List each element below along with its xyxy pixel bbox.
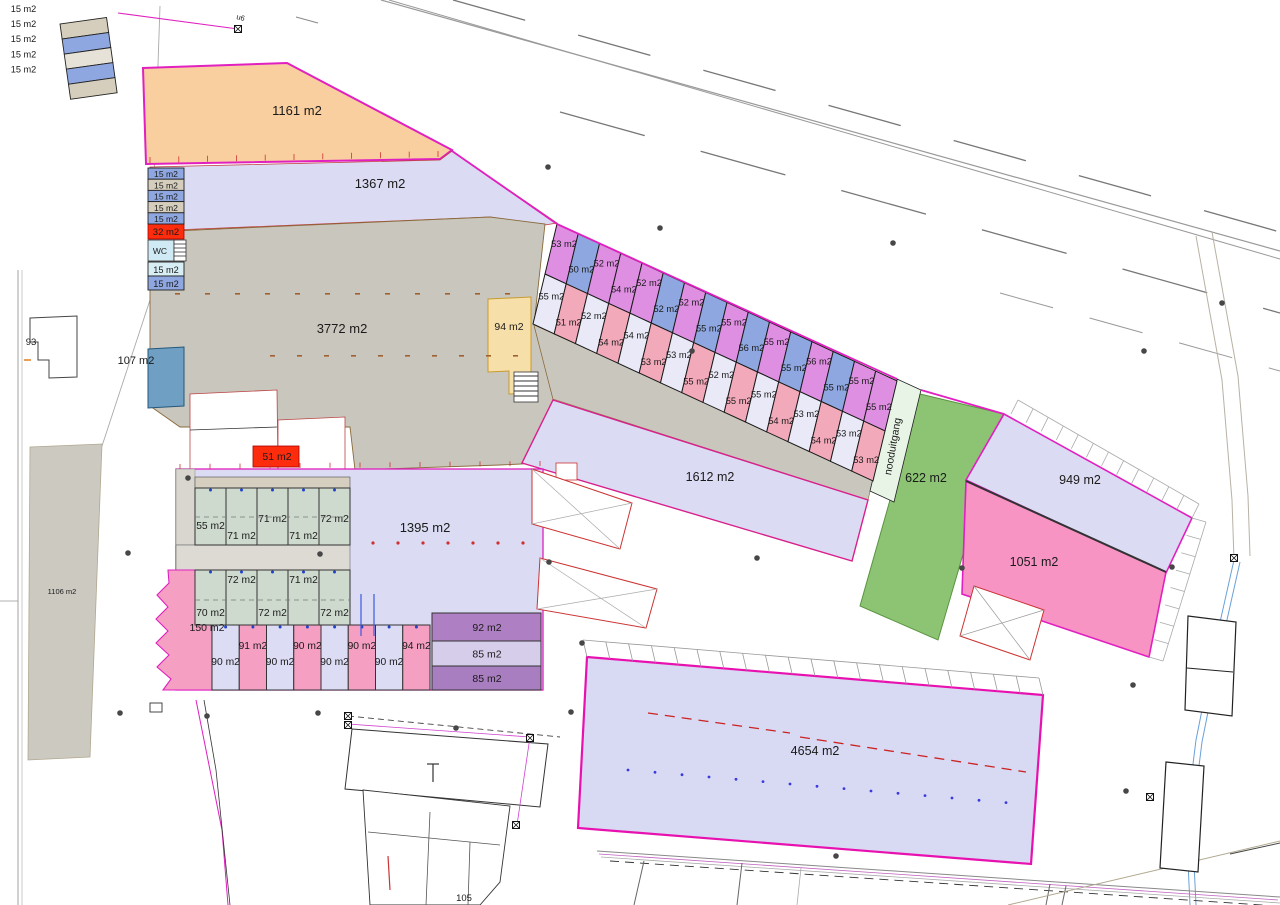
blue-dot [897,792,900,795]
unit-label: 15 m2 [153,265,179,275]
red-dot [496,541,499,544]
door-dot [415,626,418,629]
unit-label: 15 m2 [11,34,37,44]
unit-label: 92 m2 [472,622,501,634]
survey-dot [1130,682,1136,688]
slab-dash [513,355,518,357]
tick [1154,640,1168,644]
survey-dot [1141,348,1147,354]
door-dot [333,489,336,492]
unit-label: 52 m2 [653,304,679,314]
label-949: 949 m2 [1059,473,1101,487]
tick [651,646,655,663]
tick [1117,461,1124,475]
truss-roof-2 [537,558,657,628]
building-right-1 [1185,616,1236,716]
block-left-band [176,469,195,545]
unit-label: 53 m2 [641,357,667,367]
blue-dot [951,797,954,800]
label-51: 51 m2 [262,451,291,463]
survey-dot [1169,564,1175,570]
site-plan-page: 53 m250 m252 m254 m252 m252 m252 m255 m2… [0,0,1280,905]
unit-label: 55 m2 [726,396,752,406]
door-dot [209,571,212,574]
survey-dot [117,710,123,716]
block-cell [294,625,321,690]
wc-hatch [174,240,186,261]
unit-label: 15 m2 [11,49,37,59]
survey-dot [890,240,896,246]
unit-label: 94 m2 [402,641,431,652]
unit-label: 90 m2 [348,641,377,652]
unit-label: 54 m2 [611,284,637,294]
tick [720,651,724,668]
label-94: 94 m2 [494,321,523,333]
door-dot [302,489,305,492]
unit-label: 52 m2 [679,298,705,308]
blue-dot [681,773,684,776]
survey-dot [754,555,760,561]
unit-label: 15 m2 [153,279,179,289]
block-corridor [176,545,350,570]
block-cell [195,488,226,545]
label-622: 622 m2 [905,471,947,485]
unit-label: 52 m2 [581,311,607,321]
tick [743,653,747,670]
block-tan-band [195,477,350,488]
slab-dash [445,293,450,295]
tick [1162,487,1169,501]
unit-label: 90 m2 [320,657,349,668]
unit-label: 51 m2 [556,318,582,328]
red-dot [521,541,524,544]
survey-dot [315,710,321,716]
tick [1026,409,1033,423]
label-4654: 4654 m2 [791,744,840,758]
tick [1171,588,1185,592]
label-32: 32 m2 [153,227,179,238]
slab-dash [325,293,330,295]
unit-label: 53 m2 [666,350,692,360]
tick [971,672,975,689]
unit-label: 54 m2 [768,416,794,426]
slab-dash [270,355,275,357]
survey-dot [317,551,323,557]
unit-label: 55 m2 [751,389,777,399]
label-1161: 1161 m2 [272,103,322,118]
unit-label: 53 m2 [853,455,879,465]
unit-label: 72 m2 [320,514,349,525]
blue-dot [1005,801,1008,804]
tick [1147,478,1154,492]
slab-dash [486,355,491,357]
unit-label: 85 m2 [472,673,501,685]
tick [1086,443,1093,457]
block-cell [403,625,430,690]
unit-label: 15 m2 [154,214,178,224]
unit-label: 55 m2 [683,377,709,387]
tick [1176,570,1190,574]
label-150: 150 m2 [189,622,224,634]
slab-dash [351,355,356,357]
unit-label: 15 m2 [154,180,178,190]
slab-dash [297,355,302,357]
unit-label: 15 m2 [11,19,37,29]
label-1612: 1612 m2 [686,470,735,484]
base-areas [24,63,1236,905]
unit-label: 91 m2 [239,641,268,652]
unit-label: 55 m2 [538,291,564,301]
tick [1160,622,1174,626]
unit-label: 72 m2 [227,575,256,586]
plot-4654 [578,657,1043,864]
unit-label: 90 m2 [293,641,322,652]
unit-label: 55 m2 [721,317,747,327]
tick [1056,426,1063,440]
unit-label: 90 m2 [266,657,295,668]
door-dot [302,571,305,574]
unit-label: 15 m2 [154,203,178,213]
tick [879,665,883,682]
small-shed [150,703,162,712]
unit-label: 90 m2 [211,657,240,668]
survey-dot [125,550,131,556]
block-cell [348,625,375,690]
slab-dash [385,293,390,295]
blue-dot [735,778,738,781]
unit-label: 54 m2 [598,337,624,347]
red-dot [396,541,399,544]
unit-label: 71 m2 [289,531,318,542]
slab-dash [235,293,240,295]
red-dot [446,541,449,544]
blue-dot [816,785,819,788]
unit-label: 70 m2 [196,608,225,619]
survey-dot [545,164,551,170]
tick [697,650,701,667]
unit-label: 55 m2 [696,324,722,334]
tick [1011,400,1018,414]
unit-label: 52 m2 [636,278,662,288]
label-wc: WC [153,246,167,256]
unit-label: 55 m2 [764,337,790,347]
tick [1165,605,1179,609]
stairs [514,372,538,402]
label-1106: 1106 m2 [48,587,77,596]
survey-dot [453,725,459,731]
tick [1071,435,1078,449]
unit-label: 15 m2 [154,192,178,202]
tick [925,669,929,686]
survey-dot [959,565,965,571]
slab-dash [505,293,510,295]
label-3772: 3772 m2 [317,321,368,336]
unit-label: 56 m2 [806,357,832,367]
survey-dot [657,225,663,231]
tick [1187,535,1201,539]
unit-label: 55 m2 [866,402,892,412]
slab-dash [415,293,420,295]
slab-dash [355,293,360,295]
slab-dash [324,355,329,357]
tick [811,659,815,676]
tick [1192,518,1206,522]
blue-dot [924,794,927,797]
tick [1041,417,1048,431]
unit-label: 85 m2 [472,649,501,661]
blue-dot [627,769,630,772]
door-dot [240,489,243,492]
blue-dot [708,776,711,779]
survey-dot [689,348,695,354]
tick [993,674,997,691]
slab-dash [459,355,464,357]
block-cell [239,625,266,690]
label-road-marker: u6 [235,12,245,23]
tick [1149,657,1163,661]
door-dot [224,626,227,629]
unit-label: 90 m2 [375,657,404,668]
door-dot [251,626,254,629]
door-dot [333,571,336,574]
label-93: 93 [26,337,37,348]
unit-label: 15 m2 [11,65,37,75]
unit-label: 71 m2 [258,514,287,525]
slab-dash [475,293,480,295]
site-plan-drawing: 53 m250 m252 m254 m252 m252 m252 m255 m2… [0,0,1280,905]
tick [948,670,952,687]
label-1395: 1395 m2 [400,520,451,535]
unit-label: 72 m2 [258,608,287,619]
survey-dot [1123,788,1129,794]
tick [629,644,633,661]
survey-dot [204,713,210,719]
slab-dash [175,293,180,295]
door-dot [388,626,391,629]
tick [674,648,678,665]
survey-dot [579,640,585,646]
red-dot [371,541,374,544]
unit-label: 52 m2 [594,259,620,269]
tick [1102,452,1109,466]
unit-label: 53 m2 [836,429,862,439]
label-105: 105 [456,893,472,904]
tick [1016,676,1020,693]
tick [1132,469,1139,483]
strip-1106 [28,444,102,760]
unit-label: 72 m2 [320,608,349,619]
slab-dash [405,355,410,357]
tick [765,655,769,672]
unit-label: 15 m2 [154,169,178,179]
unit-label: 55 m2 [849,376,875,386]
tick [857,663,861,680]
tick [902,667,906,684]
building-105-outline [363,790,510,905]
unit-label: 52 m2 [708,370,734,380]
slab-dash [432,355,437,357]
tick [1177,495,1184,509]
blue-dot [870,790,873,793]
unit-label: 53 m2 [551,239,577,249]
survey-dot [568,709,574,715]
blue-dot [762,780,765,783]
outside-unit-stack [60,17,117,99]
tick [834,661,838,678]
label-1367: 1367 m2 [355,176,406,191]
door-dot [333,626,336,629]
survey-dot [185,475,191,481]
slab-dash [265,293,270,295]
label-107: 107 m2 [118,355,155,367]
unit-label: 50 m2 [568,265,594,275]
unit-label: 56 m2 [738,343,764,353]
tick [1192,504,1199,518]
unit-label: 54 m2 [811,435,837,445]
blue-dot [978,799,981,802]
door-dot [240,571,243,574]
tick [606,642,610,659]
tick [1039,678,1043,695]
slab-dash [378,355,383,357]
red-dot [421,541,424,544]
unit-label: 55 m2 [823,382,849,392]
door-dot [306,626,309,629]
building-right-2 [1160,762,1204,872]
door-dot [271,571,274,574]
door-dot [271,489,274,492]
blue-dot [843,787,846,790]
tick [788,657,792,674]
building-93-outline [30,316,77,378]
survey-dot [1219,300,1225,306]
unit-label: 55 m2 [196,521,225,532]
unit-label: 55 m2 [781,363,807,373]
red-dot [471,541,474,544]
survey-dot [833,853,839,859]
slab-dash [205,293,210,295]
blue-dot [654,771,657,774]
tick [1181,553,1195,557]
door-dot [279,626,282,629]
blue-dot [789,783,792,786]
survey-dot [546,559,552,565]
door-dot [209,489,212,492]
truss-small [556,463,577,480]
slab-dash [295,293,300,295]
unit-label: 15 m2 [11,4,37,14]
label-1051: 1051 m2 [1010,555,1059,569]
unit-label: 53 m2 [793,409,819,419]
unit-label: 71 m2 [227,531,256,542]
unit-label: 54 m2 [623,331,649,341]
unit-label: 71 m2 [289,575,318,586]
